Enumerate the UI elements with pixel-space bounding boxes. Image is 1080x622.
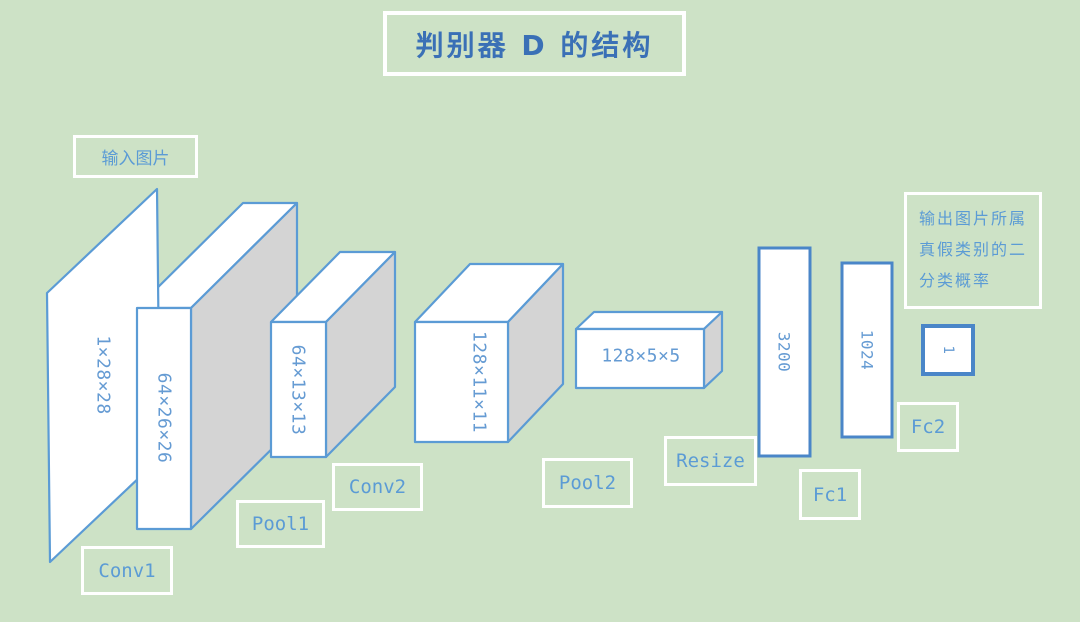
input-plane-dims: 1×28×28: [93, 335, 114, 414]
pool1-label: Pool1: [236, 500, 325, 548]
resize-output-vector: 3200: [759, 248, 810, 456]
output-description-line2: 真假类别的二: [919, 234, 1039, 265]
fc1-output-dims: 1024: [858, 330, 877, 371]
conv1-output-dims: 64×26×26: [154, 373, 175, 464]
output-description-line3: 分类概率: [919, 265, 1039, 296]
conv2-box-front-face: [415, 322, 508, 442]
conv2-label: Conv2: [332, 463, 423, 511]
conv2-output-dims: 128×11×11: [469, 331, 490, 433]
input-image-label: 输入图片: [73, 135, 198, 178]
fc1-label: Fc1: [799, 469, 861, 520]
pool2-label: Pool2: [542, 458, 633, 508]
diagram-canvas: 1×28×28 64×26×26 64×13×13 128×11×11 128×…: [0, 0, 1080, 622]
fc2-label: Fc2: [897, 402, 959, 452]
architecture-svg: 1×28×28 64×26×26 64×13×13 128×11×11 128×…: [0, 0, 1080, 622]
resize-output-dims: 3200: [775, 332, 794, 373]
output-description-line1: 输出图片所属: [919, 203, 1039, 234]
resize-label: Resize: [664, 436, 757, 486]
pool2-output-dims: 128×5×5: [601, 346, 680, 367]
fc2-output-scalar: 1: [923, 326, 973, 374]
pool1-output-dims: 64×13×13: [288, 345, 309, 436]
fc2-output-dims: 1: [940, 346, 956, 355]
output-description-box: 输出图片所属 真假类别的二 分类概率: [904, 192, 1042, 309]
pool2-output-box: 128×5×5: [576, 312, 722, 388]
conv1-output-box-front: 64×26×26: [137, 308, 191, 529]
conv2-output-box: 128×11×11: [415, 264, 563, 442]
diagram-title: 判别器 D 的结构: [383, 11, 686, 76]
conv1-label: Conv1: [81, 546, 173, 595]
pool2-box-top-face: [576, 312, 722, 329]
fc1-output-vector: 1024: [842, 263, 892, 437]
